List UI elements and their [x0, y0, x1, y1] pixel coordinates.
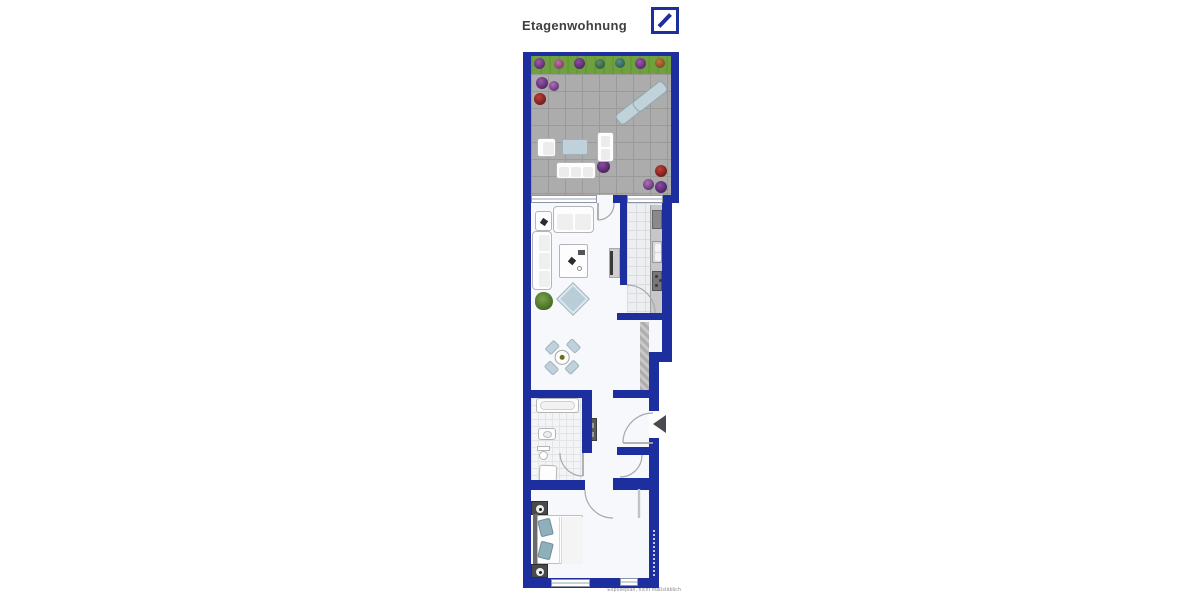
page-title: Etagenwohnung	[522, 18, 627, 33]
terrace-door-arc	[598, 203, 614, 220]
logo-slash-in-square-icon	[651, 7, 679, 34]
deutsche-bank-logo	[651, 7, 679, 34]
entrance-arrow-icon	[653, 415, 666, 433]
kitchen-door-arc	[627, 285, 655, 313]
bathroom-door-arc	[560, 453, 583, 476]
floorplan-page: Etagenwohnung	[0, 0, 1200, 600]
closet-door-arc	[620, 455, 642, 477]
bedroom-door-arc	[585, 490, 613, 518]
vertical-watermark	[653, 530, 655, 576]
door-swing-arcs	[523, 52, 679, 588]
floorplan	[523, 52, 679, 588]
entrance-door-arc	[623, 413, 653, 443]
